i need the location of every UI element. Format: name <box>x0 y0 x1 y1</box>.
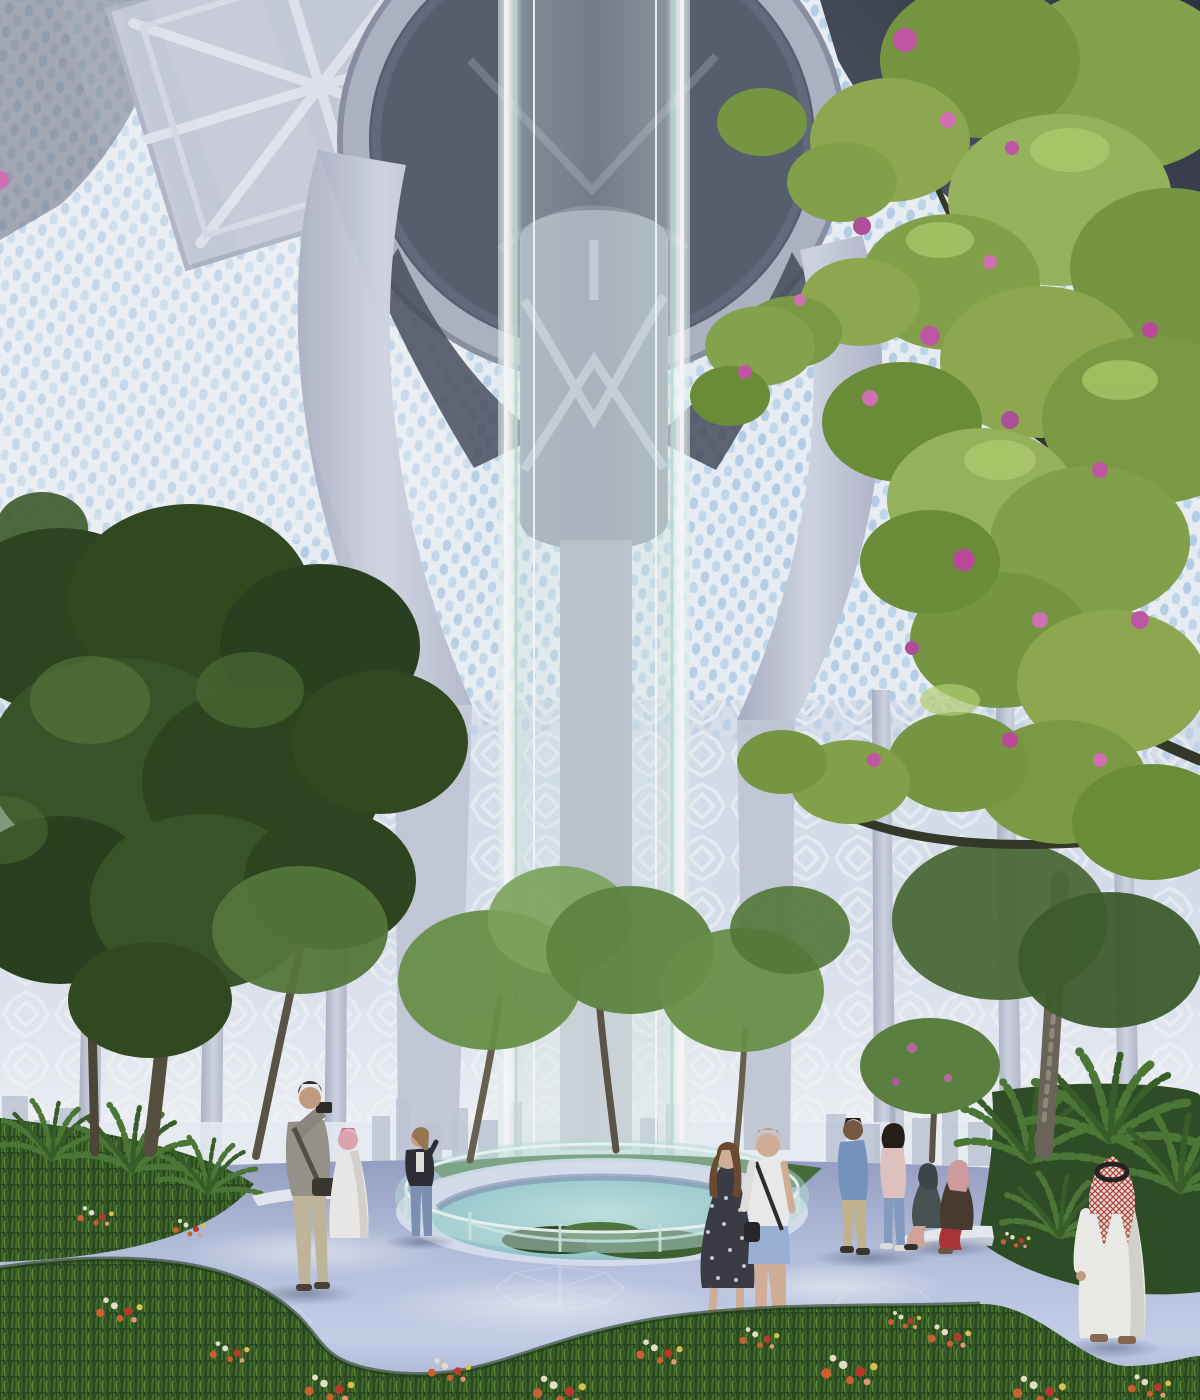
vignette-overlay <box>0 0 1200 1400</box>
atrium-rendering <box>0 0 1200 1400</box>
rendering-canvas <box>0 0 1200 1400</box>
